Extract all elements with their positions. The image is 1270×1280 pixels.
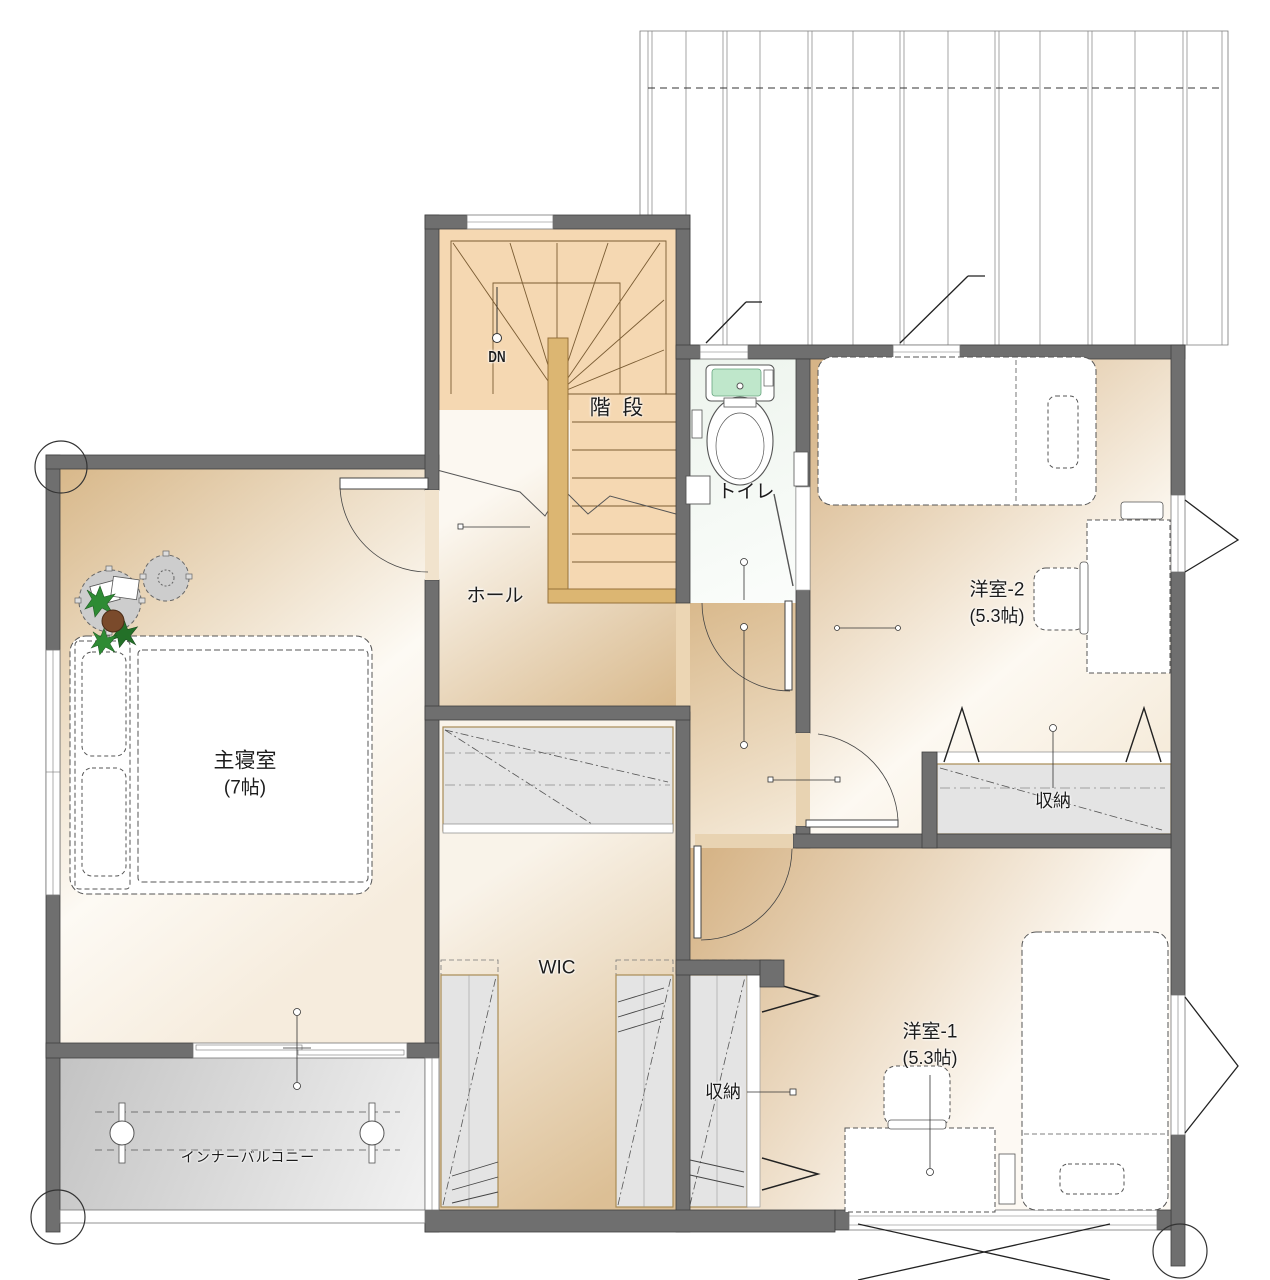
pillow — [1060, 1164, 1124, 1194]
label-storage-west2: 収納 — [1035, 792, 1071, 810]
pillow — [82, 652, 126, 756]
room-label-wic: WIC — [539, 959, 576, 978]
book — [111, 576, 140, 599]
toilet-tank-basin — [712, 369, 761, 396]
wic-top-closet — [443, 727, 673, 833]
label-storage-west1: 収納 — [705, 1083, 741, 1101]
chair — [1034, 568, 1086, 630]
room-label-western-room-1: 洋室-1 — [903, 1023, 958, 1042]
desk-side-unit — [999, 1154, 1015, 1204]
wic-middle-closet — [616, 960, 673, 1207]
round-side-table — [143, 555, 189, 601]
room-label-stairs: 階 段 — [590, 398, 647, 419]
room-size-master-bedroom: (7帖) — [224, 779, 266, 798]
floor-plan-drawing — [0, 0, 1270, 1280]
stairs-down-label: DN — [488, 348, 505, 364]
balcony-sliding-door — [193, 1043, 407, 1058]
pillow — [82, 768, 126, 876]
desk — [845, 1128, 995, 1212]
desk — [1087, 520, 1170, 673]
roof-hatching — [640, 31, 1228, 345]
room-size-western-room-1: (5.3帖) — [902, 1049, 957, 1067]
wic-left-closet — [441, 960, 498, 1207]
room-size-western-room-2: (5.3帖) — [969, 607, 1024, 625]
chair — [884, 1066, 950, 1126]
room-label-master-bedroom: 主寝室 — [214, 751, 277, 772]
paper-holder — [686, 476, 710, 504]
flush-handle — [692, 410, 702, 438]
room-label-toilet: トイレ — [717, 483, 774, 502]
desk-lamp — [1121, 502, 1163, 519]
toilet-bowl — [707, 397, 773, 485]
balcony-parapet — [60, 1210, 425, 1223]
room-label-hall: ホール — [466, 587, 523, 606]
room-label-balcony: インナーバルコニー — [181, 1150, 316, 1164]
plant-pot — [102, 610, 124, 632]
floor-plan: 階 段 DN トイレ ホール 主寝室 (7帖) 洋室-2 (5.3帖) 収納 W… — [0, 0, 1270, 1280]
pillow — [1048, 396, 1078, 468]
floor-corridor — [690, 603, 796, 848]
room-label-western-room-2: 洋室-2 — [970, 581, 1025, 600]
